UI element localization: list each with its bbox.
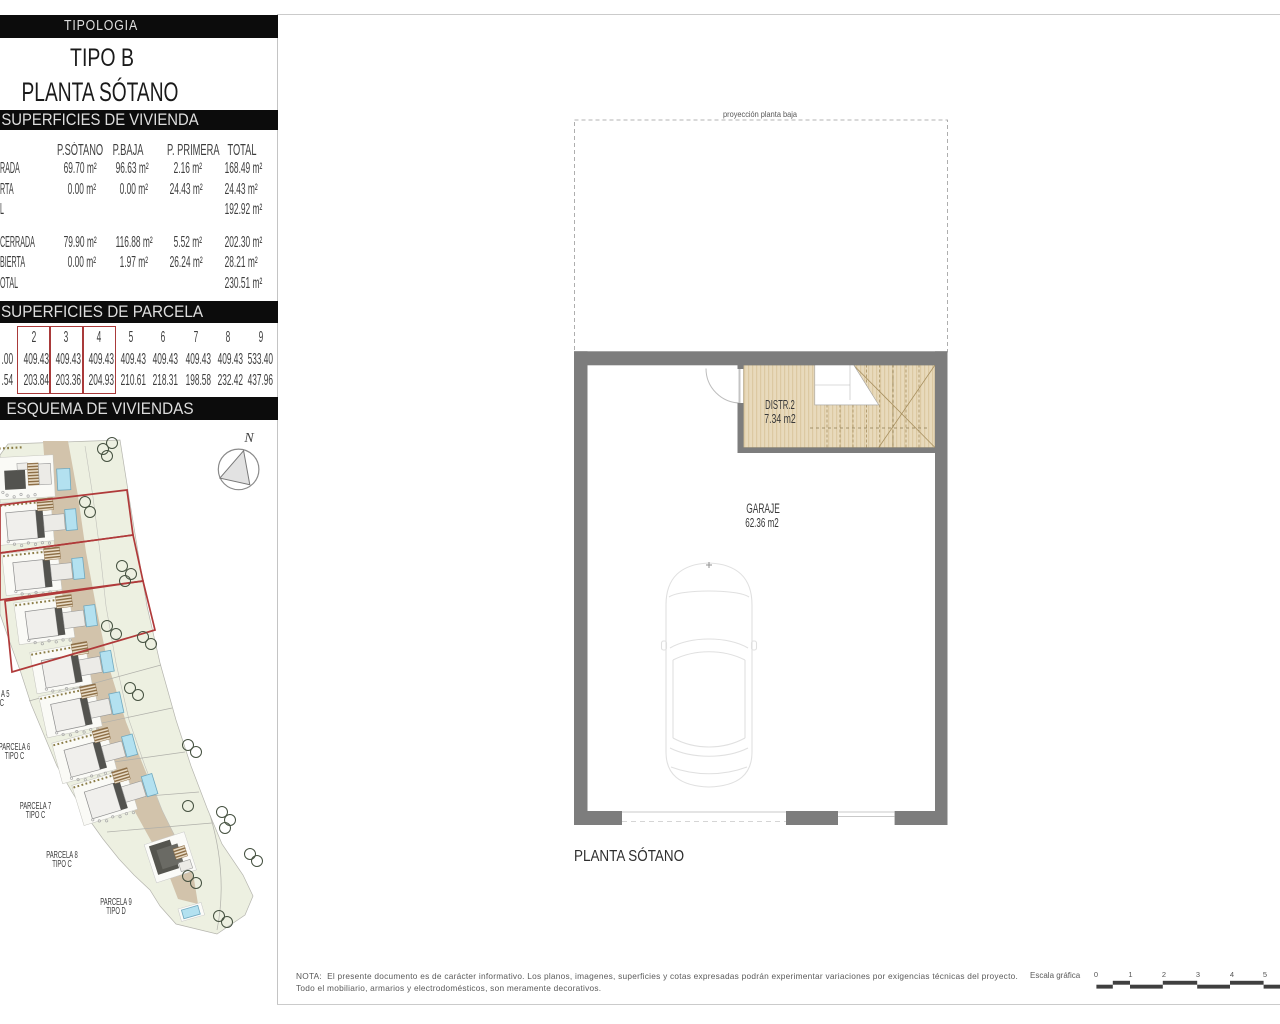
svg-text:62.36 m2: 62.36 m2 — [745, 516, 779, 530]
svg-text:TIPO D: TIPO D — [106, 904, 126, 916]
svg-text:7.34 m2: 7.34 m2 — [764, 413, 796, 427]
svg-text:TIPO C: TIPO C — [52, 857, 72, 869]
svg-text:0: 0 — [1094, 970, 1098, 979]
svg-text:3: 3 — [1196, 970, 1200, 979]
svg-text:TIPO C: TIPO C — [26, 808, 46, 820]
svg-text:2: 2 — [1162, 970, 1166, 979]
svg-text:C: C — [0, 696, 4, 708]
svg-text:5: 5 — [1263, 970, 1267, 979]
svg-text:1: 1 — [1128, 970, 1132, 979]
svg-text:DISTR.2: DISTR.2 — [765, 399, 795, 412]
svg-text:N: N — [243, 431, 254, 446]
svg-text:GARAJE: GARAJE — [746, 502, 780, 517]
svg-text:TIPO C: TIPO C — [5, 749, 25, 761]
svg-text:proyección planta baja: proyección planta baja — [723, 110, 797, 120]
svg-text:4: 4 — [1230, 970, 1234, 979]
